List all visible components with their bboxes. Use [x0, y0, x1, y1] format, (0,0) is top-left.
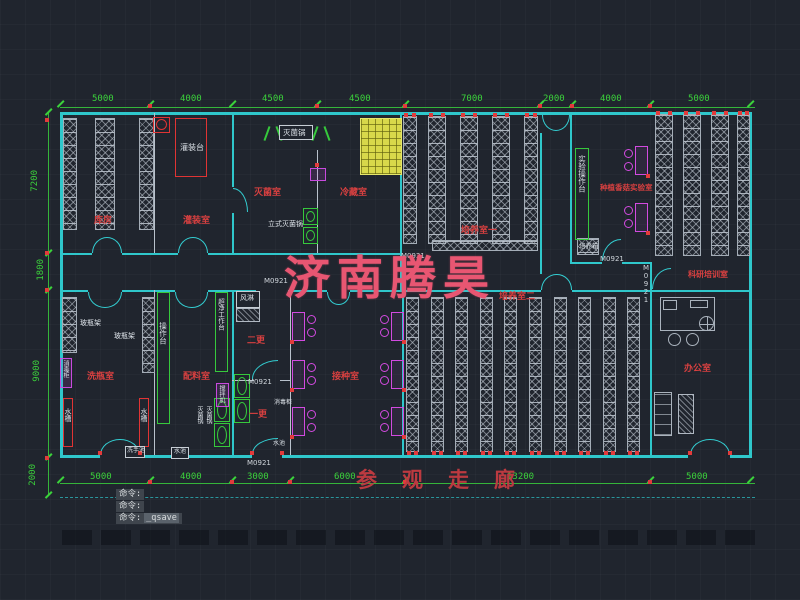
- equipment-label: 培养箱: [579, 243, 599, 250]
- wall: [232, 112, 234, 187]
- wall: [650, 290, 652, 455]
- command-prompt: 命令:: [119, 513, 141, 523]
- clean-bench-workstation: [378, 312, 404, 341]
- storage-rack: [480, 297, 493, 452]
- dim-red-mark: [45, 456, 49, 460]
- storage-rack: [406, 297, 419, 452]
- equipment-label: 风淋: [240, 295, 254, 302]
- equipment-label: 灭菌锅: [196, 406, 202, 424]
- room-label: 培养室一: [461, 227, 497, 236]
- equipment-label: 水池: [273, 441, 285, 447]
- command-line-active[interactable]: 命令:_qsave: [116, 513, 182, 524]
- storage-rack: [63, 118, 77, 230]
- dim-value-left: 9000: [33, 360, 42, 382]
- double-door-leaf: [100, 439, 120, 455]
- double-door-leaf: [710, 439, 730, 455]
- equipment-label: 灭菌锅: [283, 129, 306, 137]
- dim-value-bottom: 4000: [180, 473, 202, 482]
- wall: [60, 290, 88, 292]
- door-red-mark: [728, 451, 732, 455]
- equipment-label: 灭菌锅: [205, 406, 211, 424]
- equipment-label: 搅拌机: [218, 385, 224, 403]
- equipment-label: 水池: [174, 449, 186, 455]
- sterilizer-pot: [303, 208, 318, 225]
- dim-value-top: 5000: [92, 95, 114, 104]
- dim-value-bottom: 6000: [334, 473, 356, 482]
- room-label: 灌装室: [183, 217, 210, 226]
- double-door-leaf: [557, 274, 573, 290]
- red-dot: [315, 163, 319, 167]
- double-door-leaf: [105, 292, 122, 308]
- dim-value-bottom: 5000: [90, 473, 112, 482]
- dim-red-mark: [648, 104, 652, 108]
- door-code-label: M0921: [600, 256, 624, 263]
- sterilizer-pot: [234, 399, 250, 423]
- dim-value-top: 4500: [349, 95, 371, 104]
- equipment-label: 超净工作台: [217, 298, 224, 331]
- command-prompt: 命令:: [119, 501, 141, 511]
- equipment-label: 操作台: [159, 322, 167, 345]
- double-door-leaf: [542, 115, 556, 131]
- clean-bench-workstation: [292, 312, 318, 341]
- equipment-label: 立式灭菌锅: [268, 221, 303, 228]
- background-tile: [647, 530, 677, 545]
- storage-rack: [455, 297, 468, 452]
- dim-red-mark: [288, 480, 292, 484]
- storage-rack: [578, 297, 591, 452]
- background-tile: [335, 530, 365, 545]
- wall: [140, 455, 252, 458]
- storage-rack: [603, 297, 616, 452]
- cold-storage-unit: [360, 118, 402, 175]
- equipment-label: 消毒柜: [274, 400, 292, 406]
- red-fixture-circle: [156, 119, 167, 130]
- dim-value-top: 7000: [461, 95, 483, 104]
- wall: [570, 112, 572, 262]
- equipment-label: 玻瓶架: [80, 320, 101, 327]
- dim-red-mark: [648, 480, 652, 484]
- storage-rack: [428, 116, 446, 244]
- wall: [570, 262, 602, 264]
- room-label: 灭菌室: [254, 189, 281, 198]
- double-door-leaf: [193, 237, 208, 253]
- dim-red-mark: [538, 104, 542, 108]
- partition-wall: [154, 113, 155, 253]
- dim-red-mark: [148, 480, 152, 484]
- dashed-line: [60, 497, 755, 499]
- background-tile: [257, 530, 287, 545]
- partition-wall: [290, 290, 291, 455]
- equipment-label: 消毒柜: [62, 360, 68, 378]
- background-tile: [218, 530, 248, 545]
- wall: [232, 213, 234, 255]
- dim-line-left: [48, 112, 49, 496]
- clean-bench-workstation: [292, 407, 318, 436]
- office-chair: [686, 333, 699, 346]
- background-tile: [374, 530, 404, 545]
- dim-value-left: 1800: [37, 259, 46, 281]
- dim-value-top: 4000: [180, 95, 202, 104]
- background-tile: [413, 530, 443, 545]
- valve-mark: [323, 126, 330, 141]
- storage-rack: [142, 297, 155, 373]
- wall: [572, 290, 752, 292]
- background-tile: [62, 530, 92, 545]
- clean-bench-workstation: [622, 203, 648, 232]
- door-code-label: M0921: [247, 460, 271, 467]
- round-table: [699, 316, 714, 331]
- door-red-mark: [250, 451, 254, 455]
- red-equipment: [139, 398, 149, 447]
- room-label: 种植香菇实验室: [600, 184, 653, 192]
- wall: [540, 133, 542, 274]
- clean-bench-workstation: [378, 407, 404, 436]
- door-code-label: M0921: [248, 379, 272, 386]
- background-tile: [569, 530, 599, 545]
- cad-canvas[interactable]: 库房灌装室灭菌室冷藏室培养室一种植香菇实验室科研培训室办公室培养室二接种室二更一…: [0, 0, 800, 600]
- coffee-table: [678, 394, 694, 434]
- sterilizer-pot: [214, 423, 230, 447]
- dim-value-top: 5000: [688, 95, 710, 104]
- dim-red-mark: [45, 251, 49, 255]
- background-tile: [686, 530, 716, 545]
- desk-item: [663, 300, 677, 310]
- door-red-mark: [688, 451, 692, 455]
- dim-value-top: 4500: [262, 95, 284, 104]
- red-equipment: [63, 398, 73, 447]
- wall: [282, 455, 688, 458]
- dim-value-left: 2000: [29, 464, 38, 486]
- dim-value-bottom: 3000: [247, 473, 269, 482]
- storage-rack: [737, 114, 750, 256]
- background-tile: [101, 530, 131, 545]
- office-chair: [668, 333, 681, 346]
- equipment-label: 洗手池: [127, 448, 145, 454]
- equipment-label: 实验操作台: [578, 155, 586, 193]
- command-line-2[interactable]: 命令:: [116, 501, 144, 512]
- dim-red-mark: [570, 104, 574, 108]
- sofa: [654, 392, 672, 436]
- workbench: [157, 292, 170, 424]
- corridor-label: 参观走廊: [356, 464, 540, 494]
- double-door-leaf: [92, 237, 107, 253]
- command-input-value: _qsave: [144, 513, 179, 523]
- double-door-leaf: [175, 292, 192, 308]
- clean-bench-workstation: [292, 360, 318, 389]
- room-label: 办公室: [684, 365, 711, 374]
- dim-value-top: 2000: [543, 95, 565, 104]
- equipment-label: 玻瓶架: [114, 333, 135, 340]
- door-red-mark: [98, 451, 102, 455]
- storage-rack: [524, 116, 538, 244]
- dim-red-mark: [148, 104, 152, 108]
- clean-bench-workstation: [378, 360, 404, 389]
- room-label: 冷藏室: [340, 189, 367, 198]
- background-tile: [296, 530, 326, 545]
- wall: [60, 253, 92, 255]
- equipment-label: 水槽: [140, 408, 147, 422]
- dim-red-mark: [45, 288, 49, 292]
- storage-rack: [139, 118, 154, 230]
- command-line-1[interactable]: 命令:: [116, 489, 144, 500]
- background-tile: [608, 530, 638, 545]
- storage-rack: [655, 114, 673, 256]
- door-code-label: M0921: [642, 264, 649, 304]
- background-tile: [179, 530, 209, 545]
- storage-rack: [504, 297, 517, 452]
- wall: [122, 253, 178, 255]
- room-label: 二更: [247, 337, 265, 346]
- storage-rack: [403, 116, 417, 244]
- dim-red-mark: [315, 104, 319, 108]
- background-tile: [491, 530, 521, 545]
- storage-rack: [683, 114, 701, 256]
- background-tile: [530, 530, 560, 545]
- door-arc: [233, 188, 248, 212]
- double-door-leaf: [178, 237, 193, 253]
- double-door-leaf: [556, 115, 570, 131]
- dim-red-mark: [230, 480, 234, 484]
- double-door-leaf: [192, 292, 209, 308]
- valve-mark: [263, 126, 270, 141]
- storage-rack: [554, 297, 567, 452]
- door-arc: [252, 360, 278, 379]
- storage-rack: [95, 118, 115, 230]
- desk-monitor: [690, 300, 708, 308]
- equipment-label: 水槽: [64, 408, 71, 422]
- door-red-mark: [280, 451, 284, 455]
- dim-value-top: 4000: [600, 95, 622, 104]
- storage-rack: [711, 114, 729, 256]
- equipment-box: [310, 168, 326, 181]
- room-label: 一更: [249, 411, 267, 420]
- room-label: 科研培训室: [688, 271, 728, 279]
- room-label: 接种室: [332, 373, 359, 382]
- room-label: 库房: [94, 217, 112, 226]
- dim-red-mark: [403, 104, 407, 108]
- storage-rack: [627, 297, 640, 452]
- storage-rack: [460, 116, 478, 244]
- storage-rack: [492, 116, 510, 244]
- double-door-leaf: [541, 274, 557, 290]
- wall: [232, 290, 234, 455]
- room-label: 培养室二: [499, 293, 535, 302]
- storage-rack: [62, 297, 77, 353]
- command-prompt: 命令:: [119, 489, 141, 499]
- background-tile: [140, 530, 170, 545]
- dim-red-mark: [45, 118, 49, 122]
- partition-wall: [280, 380, 290, 381]
- room-label: 洗瓶室: [87, 373, 114, 382]
- room-label: 配料室: [183, 373, 210, 382]
- watermark-text: 济南腾昊: [284, 242, 496, 308]
- door-arc: [652, 268, 671, 289]
- storage-rack: [529, 297, 542, 452]
- double-door-leaf: [88, 292, 105, 308]
- dim-value-bottom: 5000: [686, 473, 708, 482]
- air-shower-hatch: [236, 308, 260, 322]
- double-door-leaf: [107, 237, 122, 253]
- background-tile: [725, 530, 755, 545]
- equipment-label: 灌装台: [180, 144, 204, 152]
- dim-tick: [45, 491, 52, 498]
- wall: [60, 455, 100, 458]
- background-tile: [452, 530, 482, 545]
- clean-bench-workstation: [622, 146, 648, 175]
- storage-rack: [431, 297, 444, 452]
- dim-value-left: 7200: [31, 170, 40, 192]
- double-door-leaf: [690, 439, 710, 455]
